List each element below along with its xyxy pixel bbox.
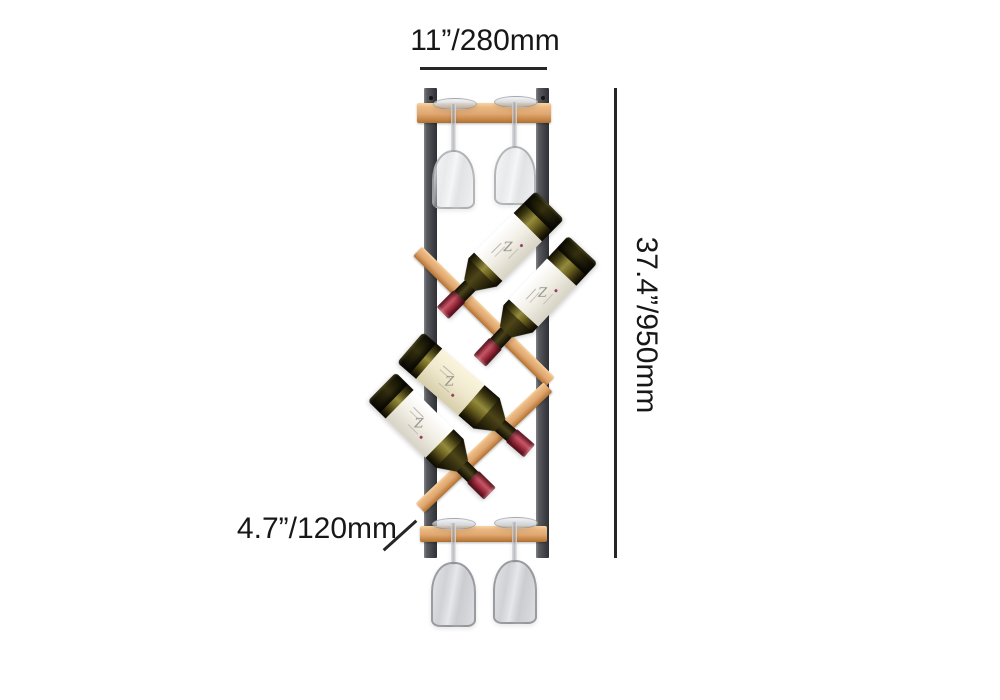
- glass-stem: [451, 104, 456, 152]
- bottle-label: Z: [509, 258, 576, 326]
- height-dimension-label: 37.4”/950mm: [629, 227, 663, 423]
- glass-bowl: [431, 562, 476, 627]
- bottle-label-mark: Z: [446, 374, 455, 389]
- bottle-label: Z: [474, 213, 542, 281]
- depth-dimension-label: 4.7”/120mm: [212, 512, 397, 546]
- glass-bowl: [493, 560, 537, 624]
- height-dimension-line: [614, 88, 617, 558]
- glass-stem: [512, 102, 517, 148]
- wine-glass-top-left: [432, 96, 476, 212]
- wine-glass-bottom-left: [431, 517, 476, 629]
- bottle-label-mark: Z: [503, 239, 512, 254]
- bottle-label-mark: Z: [415, 416, 424, 431]
- width-dimension-line: [420, 67, 547, 70]
- glass-stem: [451, 523, 456, 565]
- mounting-hole-right: [541, 96, 545, 100]
- width-dimension-label: 11”/280mm: [375, 24, 595, 58]
- glass-stem: [512, 522, 517, 563]
- wine-glass-top-right: [494, 94, 538, 210]
- wine-glass-bottom-right: [493, 516, 538, 628]
- product-image-canvas: 11”/280mm 37.4”/950mm 4.7”/120mm: [0, 0, 1000, 700]
- glass-bowl: [432, 150, 475, 209]
- bottle-label-mark: Z: [538, 285, 547, 300]
